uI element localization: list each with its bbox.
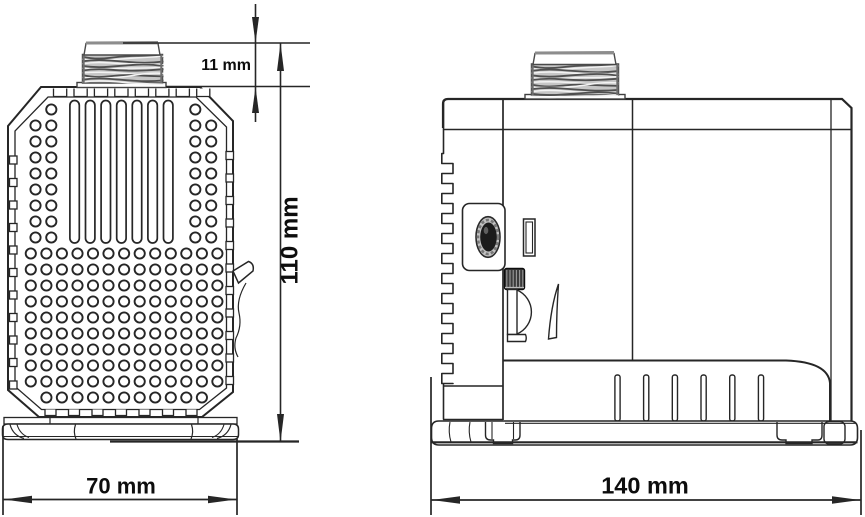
svg-text:110 mm: 110 mm bbox=[277, 196, 304, 284]
svg-text:70 mm: 70 mm bbox=[86, 474, 156, 499]
svg-text:140 mm: 140 mm bbox=[601, 473, 689, 499]
svg-text:11 mm: 11 mm bbox=[201, 57, 251, 74]
